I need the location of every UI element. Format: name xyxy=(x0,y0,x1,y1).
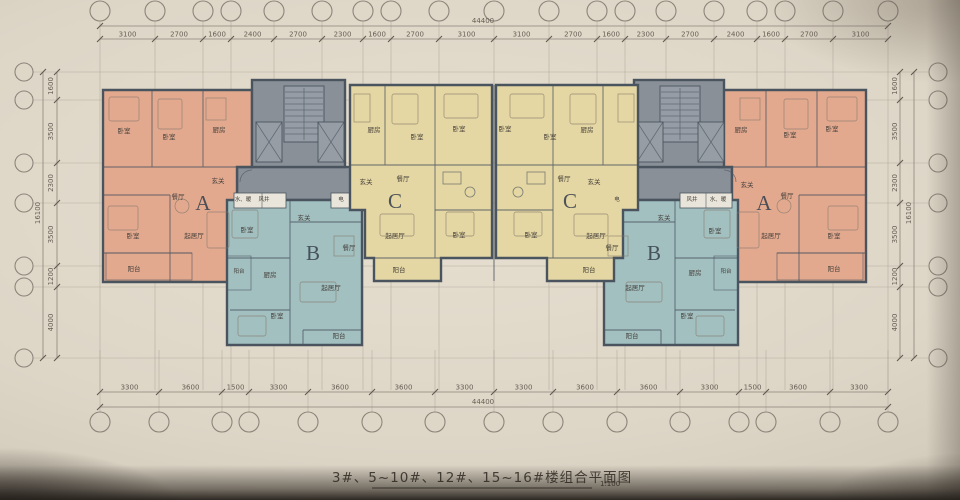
room-label-kitchen: 厨房 xyxy=(689,268,702,277)
dimension-label: 4000 xyxy=(891,314,899,332)
room-label-bedroom: 卧室 xyxy=(709,226,723,235)
room-label-dining: 餐厅 xyxy=(343,243,357,252)
grid-bubble xyxy=(670,412,690,432)
grid-bubble xyxy=(929,63,947,81)
room-label-bedroom: 卧室 xyxy=(271,311,285,320)
grid-bubble xyxy=(15,63,33,81)
room-label-balcony: 阳台 xyxy=(333,331,346,340)
grid-bubble xyxy=(15,257,33,275)
dimension-label: 1500 xyxy=(227,384,245,392)
grid-bubble xyxy=(221,1,241,21)
room-label-dining: 餐厅 xyxy=(606,243,620,252)
dimension-label: 3600 xyxy=(640,384,658,392)
unit-letter: B xyxy=(306,241,320,265)
dimension-label: 3300 xyxy=(850,384,868,392)
room-label-balcony: 阳台 xyxy=(393,265,406,274)
room-label-bedroom: 卧室 xyxy=(544,132,558,141)
grid-bubble xyxy=(756,412,776,432)
dimension-label: 3600 xyxy=(789,384,807,392)
dimension-label: 1200 xyxy=(891,268,899,286)
grid-bubble xyxy=(543,412,563,432)
room-label-entry: 玄关 xyxy=(658,213,672,222)
room-label-bedroom: 卧室 xyxy=(118,126,132,135)
floor-plan-sheet: 3100270016002400270023001600270031003100… xyxy=(0,0,960,500)
dimension-label: 3300 xyxy=(456,384,474,392)
room-label-kitchen: 厨房 xyxy=(368,125,381,134)
room-label-bedroom: 卧室 xyxy=(241,225,255,234)
grid-bubble xyxy=(353,1,373,21)
room-label-water-heat: 水、暖 xyxy=(235,195,252,203)
grid-bubble xyxy=(362,412,382,432)
room-label-bedroom: 卧室 xyxy=(499,124,513,133)
dimension-label: 1600 xyxy=(602,31,620,39)
drawing-scale: 1:100 xyxy=(600,480,620,488)
grid-bubble xyxy=(484,412,504,432)
dimension-label: 16100 xyxy=(905,202,913,224)
room-label-kitchen: 厨房 xyxy=(581,125,594,134)
dimension-label: 3300 xyxy=(270,384,288,392)
dimension-label: 3300 xyxy=(701,384,719,392)
room-label-living: 起居厅 xyxy=(385,232,405,240)
room-label-bedroom: 卧室 xyxy=(127,231,141,240)
dimension-label: 2700 xyxy=(800,31,818,39)
dimension-label: 2400 xyxy=(244,31,262,39)
dimension-label: 1600 xyxy=(368,31,386,39)
grid-bubble xyxy=(747,1,767,21)
room-label-living: 起居厅 xyxy=(761,232,781,240)
grid-bubble xyxy=(775,1,795,21)
grid-bubble xyxy=(264,1,284,21)
room-label-kitchen: 厨房 xyxy=(213,125,226,134)
room-label-balcony: 阳台 xyxy=(233,267,245,275)
grid-bubble xyxy=(90,1,110,21)
grid-bubble xyxy=(15,194,33,212)
grid-bubble xyxy=(878,412,898,432)
grid-bubble xyxy=(212,412,232,432)
room-label-balcony: 阳台 xyxy=(128,264,141,273)
grid-bubble xyxy=(298,412,318,432)
grid-bubble xyxy=(145,1,165,21)
room-label-kitchen: 厨房 xyxy=(264,270,277,279)
grid-bubble xyxy=(729,412,749,432)
grid-bubble xyxy=(929,91,947,109)
unit-letter: C xyxy=(563,189,577,213)
dimension-label: 2700 xyxy=(564,31,582,39)
room-label-bedroom: 卧室 xyxy=(525,230,539,239)
room-label-entry: 玄关 xyxy=(741,180,755,189)
grid-bubble xyxy=(239,412,259,432)
dimension-label: 3300 xyxy=(515,384,533,392)
dimension-label: 3100 xyxy=(513,31,531,39)
building xyxy=(103,80,866,345)
grid-bubble xyxy=(615,1,635,21)
floor-plan-drawing: 3100270016002400270023001600270031003100… xyxy=(0,0,960,500)
room-label-dining: 餐厅 xyxy=(558,174,572,183)
room-label-living: 起居厅 xyxy=(625,284,645,292)
dimension-label: 2700 xyxy=(406,31,424,39)
dimension-label: 3100 xyxy=(458,31,476,39)
room-label-entry: 玄关 xyxy=(298,213,312,222)
grid-bubble xyxy=(823,1,843,21)
room-label-elec: 电 xyxy=(338,195,344,203)
grid-bubble xyxy=(929,154,947,172)
grid-bubble xyxy=(607,412,627,432)
room-label-bedroom: 卧室 xyxy=(453,124,467,133)
dimension-label: 3500 xyxy=(891,123,899,141)
dimension-label: 2300 xyxy=(334,31,352,39)
dimension-label: 16100 xyxy=(34,202,42,224)
room-label-dining: 餐厅 xyxy=(172,192,186,201)
unit-letter: C xyxy=(388,189,402,213)
room-label-balcony: 阳台 xyxy=(828,264,841,273)
grid-bubble xyxy=(429,1,449,21)
grid-bubble xyxy=(15,154,33,172)
room-label-living: 起居厅 xyxy=(184,232,204,240)
grid-bubble xyxy=(15,349,33,367)
dimension-label: 2300 xyxy=(637,31,655,39)
grid-bubble xyxy=(425,412,445,432)
dimension-label: 1200 xyxy=(47,268,55,286)
title-block: 3#、5~10#、12#、15~16#楼组合平面图 1:100 xyxy=(332,470,632,488)
room-label-entry: 玄关 xyxy=(212,176,226,185)
grid-bubble xyxy=(929,278,947,296)
grid-bubble xyxy=(929,194,947,212)
dimension-label: 2700 xyxy=(681,31,699,39)
dimension-label: 2300 xyxy=(47,174,55,192)
grid-bubble xyxy=(539,1,559,21)
grid-bubble xyxy=(15,91,33,109)
room-label-air-shaft: 风井 xyxy=(258,195,270,203)
unit-letter: B xyxy=(647,241,661,265)
room-label-kitchen: 厨房 xyxy=(735,125,748,134)
room-label-bedroom: 卧室 xyxy=(826,124,840,133)
dimension-label: 1600 xyxy=(891,77,899,95)
dimension-label: 3600 xyxy=(182,384,200,392)
unit-letter: A xyxy=(195,191,211,215)
room-label-elec: 电 xyxy=(614,195,620,203)
room-label-dining: 餐厅 xyxy=(397,174,411,183)
grid-bubble xyxy=(656,1,676,21)
room-label-bedroom: 卧室 xyxy=(681,311,695,320)
dimension-label: 3600 xyxy=(576,384,594,392)
dimension-label: 1600 xyxy=(47,77,55,95)
grid-bubble xyxy=(878,1,898,21)
unit-letter: A xyxy=(756,191,772,215)
room-label-balcony: 阳台 xyxy=(720,267,732,275)
room-label-entry: 玄关 xyxy=(360,177,374,186)
dimension-label: 3100 xyxy=(119,31,137,39)
room-label-bedroom: 卧室 xyxy=(163,132,177,141)
room-label-living: 起居厅 xyxy=(586,232,606,240)
dimension-label: 3600 xyxy=(331,384,349,392)
grid-bubble xyxy=(381,1,401,21)
dimension-label: 4000 xyxy=(47,314,55,332)
dimension-label: 3500 xyxy=(47,123,55,141)
dimension-label: 2400 xyxy=(727,31,745,39)
grid-bubble xyxy=(704,1,724,21)
grid-bubble xyxy=(149,412,169,432)
dimension-label: 1600 xyxy=(762,31,780,39)
grid-bubble xyxy=(193,1,213,21)
grid-bubble xyxy=(820,412,840,432)
room-label-balcony: 阳台 xyxy=(583,265,596,274)
dimension-label: 3500 xyxy=(891,226,899,244)
room-label-entry: 玄关 xyxy=(588,177,602,186)
dimension-label: 3300 xyxy=(121,384,139,392)
dimension-label: 3500 xyxy=(47,226,55,244)
dimension-label: 1500 xyxy=(744,384,762,392)
dimension-label: 2300 xyxy=(891,174,899,192)
room-label-bedroom: 卧室 xyxy=(784,130,798,139)
room-label-water-heat: 水、暖 xyxy=(710,195,727,203)
dimension-label: 2700 xyxy=(289,31,307,39)
grid-bubble xyxy=(90,412,110,432)
grid-bubble xyxy=(929,257,947,275)
dimension-label: 44400 xyxy=(472,17,494,25)
room-label-dining: 餐厅 xyxy=(781,191,795,200)
dimension-label: 3600 xyxy=(395,384,413,392)
room-label-bedroom: 卧室 xyxy=(453,230,467,239)
grid-bubble xyxy=(587,1,607,21)
dimension-label: 2700 xyxy=(170,31,188,39)
dimension-label: 3100 xyxy=(852,31,870,39)
dimension-label: 44400 xyxy=(472,398,494,406)
drawing-title: 3#、5~10#、12#、15~16#楼组合平面图 xyxy=(332,470,632,486)
grid-bubble xyxy=(15,278,33,296)
room-label-bedroom: 卧室 xyxy=(828,231,842,240)
room-label-bedroom: 卧室 xyxy=(411,132,425,141)
room-label-balcony: 阳台 xyxy=(626,331,639,340)
grid-bubble xyxy=(929,349,947,367)
room-label-air-shaft: 风井 xyxy=(686,195,698,203)
grid-bubble xyxy=(312,1,332,21)
dimension-label: 1600 xyxy=(208,31,226,39)
room-label-living: 起居厅 xyxy=(321,284,341,292)
